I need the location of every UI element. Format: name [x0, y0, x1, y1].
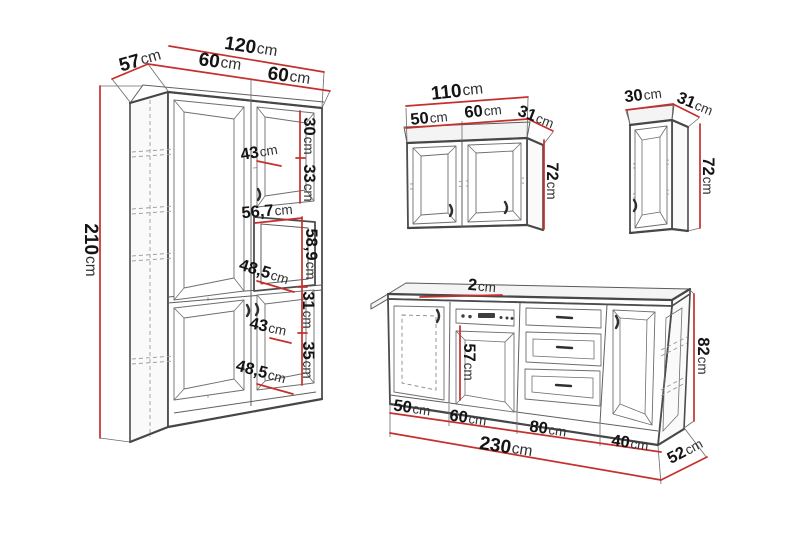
dim-base-height: 82cm [694, 337, 712, 374]
tall-cabinet-door-lower-left [174, 300, 244, 400]
dim-base-oven-opening: 57cm [460, 343, 478, 380]
oven-knob [506, 317, 509, 320]
dim-base-counter-thickness: 2cm [467, 276, 497, 296]
dim-wall-wide-door-right: 60cm [463, 100, 502, 122]
dim-wall-narrow-height: 72cm [699, 157, 717, 194]
tall-cabinet: 120cm 57cm 60cm 60cm 210cm 30cm 33cm 43c… [81, 32, 331, 442]
dim-tall-sec-lower-bottom: 35cm [299, 341, 317, 378]
base-countertop-left-end [371, 294, 388, 309]
tall-cabinet-side-face [130, 92, 168, 442]
wall-wide-door-left [413, 146, 456, 224]
dim-tall-sec-upper: 33cm [300, 164, 318, 201]
wall-wide-door-right [468, 143, 521, 222]
wall-narrow-door [634, 126, 667, 228]
base-drawer-stack [525, 308, 601, 406]
drawer-handle [556, 385, 571, 386]
oven-knob [500, 316, 503, 319]
dim-tall-depth: 57cm [117, 44, 164, 76]
dim-base-depth: 52cm [664, 434, 705, 467]
base-door-1 [394, 306, 444, 400]
tall-cabinet-door-upper-left [174, 100, 244, 300]
dim-wall-narrow-width: 30cm [623, 84, 662, 106]
drawer-handle [557, 317, 572, 318]
dim-tall-sec-top: 30cm [300, 117, 318, 154]
oven-knob [461, 314, 464, 317]
drawer-handle [557, 347, 572, 348]
dim-tall-sec-lower-top: 31cm [299, 291, 317, 328]
drawer-2 [526, 332, 601, 366]
base-door-4 [613, 310, 655, 425]
oven-display [478, 313, 495, 318]
cabinet-dimension-diagram: 120cm 57cm 60cm 60cm 210cm 30cm 33cm 43c… [0, 0, 800, 533]
wall-cabinet-wide: 110cm 50cm 60cm 31cm 72cm [404, 78, 561, 230]
diagram-canvas: 120cm 57cm 60cm 60cm 210cm 30cm 33cm 43c… [0, 0, 800, 533]
dim-tall-height: 210cm [81, 223, 102, 276]
drawer-3 [525, 369, 600, 406]
dim-tall-niche-height: 58,9cm [302, 228, 320, 279]
oven-knob [468, 315, 471, 318]
base-cabinet-run: 2cm 57cm 82cm 50cm 60cm 80cm 40cm 230cm … [371, 276, 712, 484]
oven-knob [511, 317, 514, 320]
wall-cabinet-narrow: 30cm 31cm 72cm [623, 84, 717, 233]
dim-wall-wide-height: 72cm [543, 162, 561, 199]
wall-narrow-side-face [672, 120, 688, 231]
dim-base-width-total: 230cm [478, 432, 534, 461]
wall-wide-side-face [527, 138, 543, 230]
